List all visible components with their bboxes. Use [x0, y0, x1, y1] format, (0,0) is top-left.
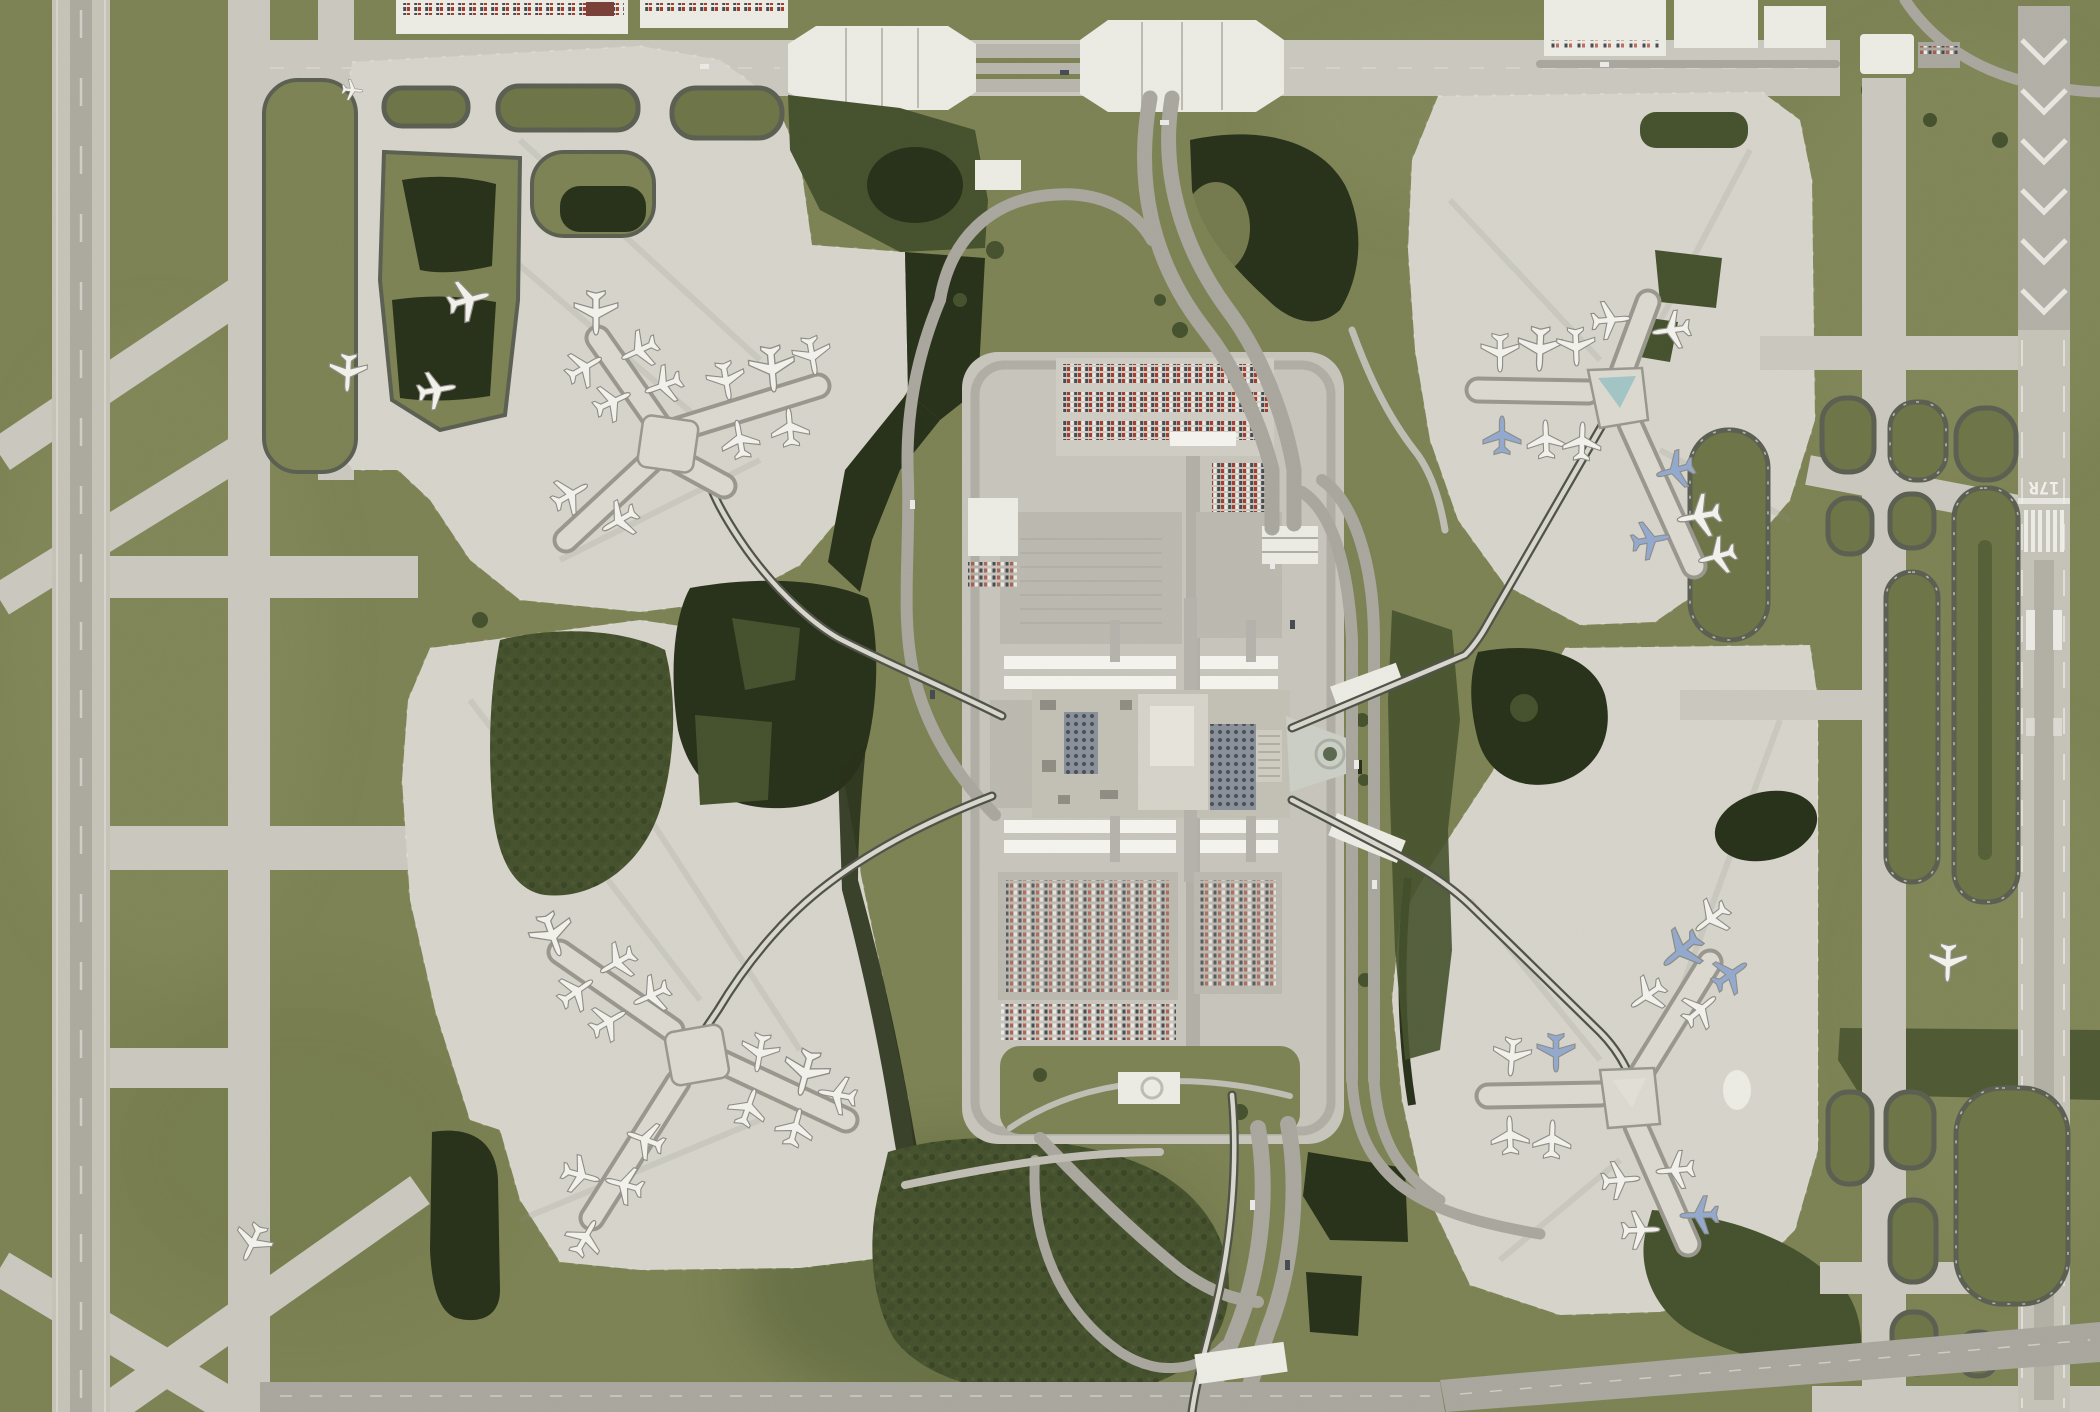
satellite-image: 17R [0, 0, 2100, 1412]
photo-grain-overlay [0, 0, 2100, 1412]
